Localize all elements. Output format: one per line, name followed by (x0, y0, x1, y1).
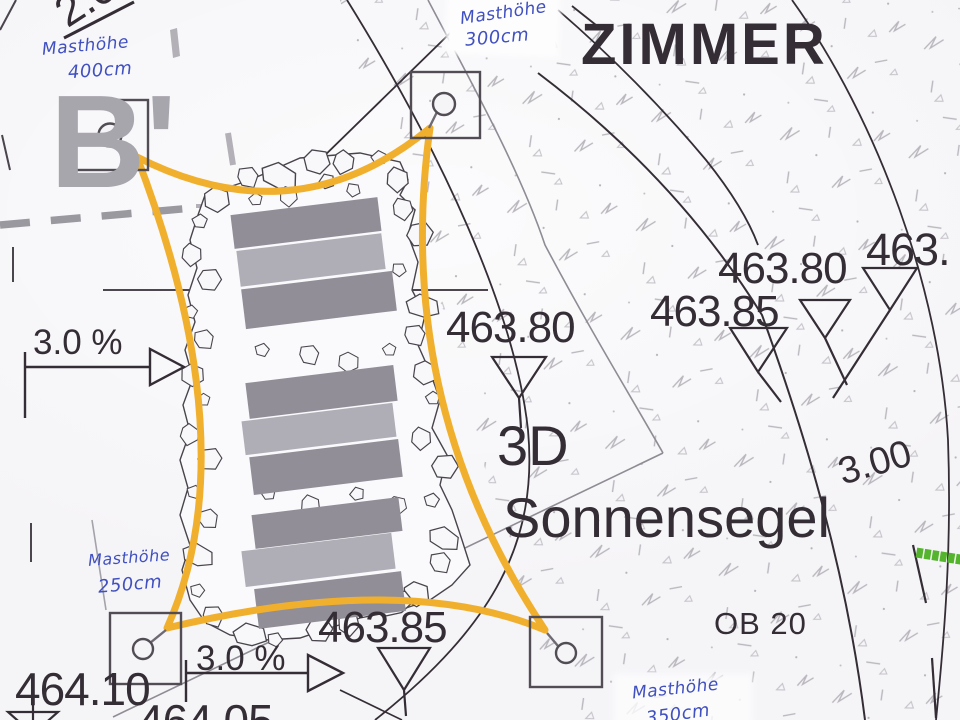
plan-title: ZIMMER (581, 16, 828, 74)
sail-label-line2: Sonnensegel (503, 490, 830, 546)
elevation-triangle-bottom-center (378, 648, 430, 716)
elevation-bottom-left: 464.10 (15, 666, 150, 712)
slope-label-bottom: 3.0 % (196, 641, 286, 676)
sail-label-line1: 3D (497, 418, 569, 474)
edge-marks (0, 0, 31, 562)
slope-label-left: 3.0 % (33, 325, 123, 360)
timber-bars (230, 197, 405, 629)
site-plan: ZIMMER B' 3D Sonnensegel OB 20 463.80 46… (0, 0, 960, 720)
elevation-bottom-center: 463.85 (318, 606, 447, 650)
elevation-center: 463.80 (446, 306, 575, 350)
section-marker-label: B' (50, 76, 177, 208)
elevation-right-85: 463.85 (650, 290, 779, 334)
elevation-bottom-edge: 464.05 (138, 698, 273, 720)
elevation-right-edge: 463. (866, 227, 950, 272)
elevation-right-80: 463.80 (718, 247, 847, 291)
mast-note-top-left-line2: 400cm (67, 60, 132, 82)
area-code-label: OB 20 (714, 608, 807, 639)
